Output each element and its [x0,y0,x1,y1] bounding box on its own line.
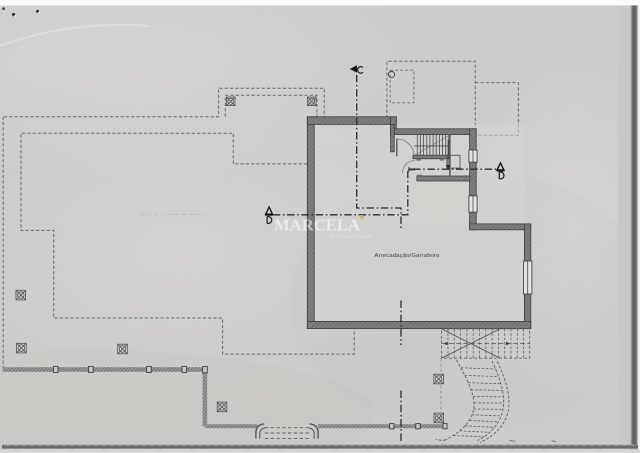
svg-text:Real Estate Group: Real Estate Group [330,234,372,240]
svg-text:MARCELA: MARCELA [274,216,360,235]
svg-text:Arrecadação/Garrafeira: Arrecadação/Garrafeira [375,253,440,259]
